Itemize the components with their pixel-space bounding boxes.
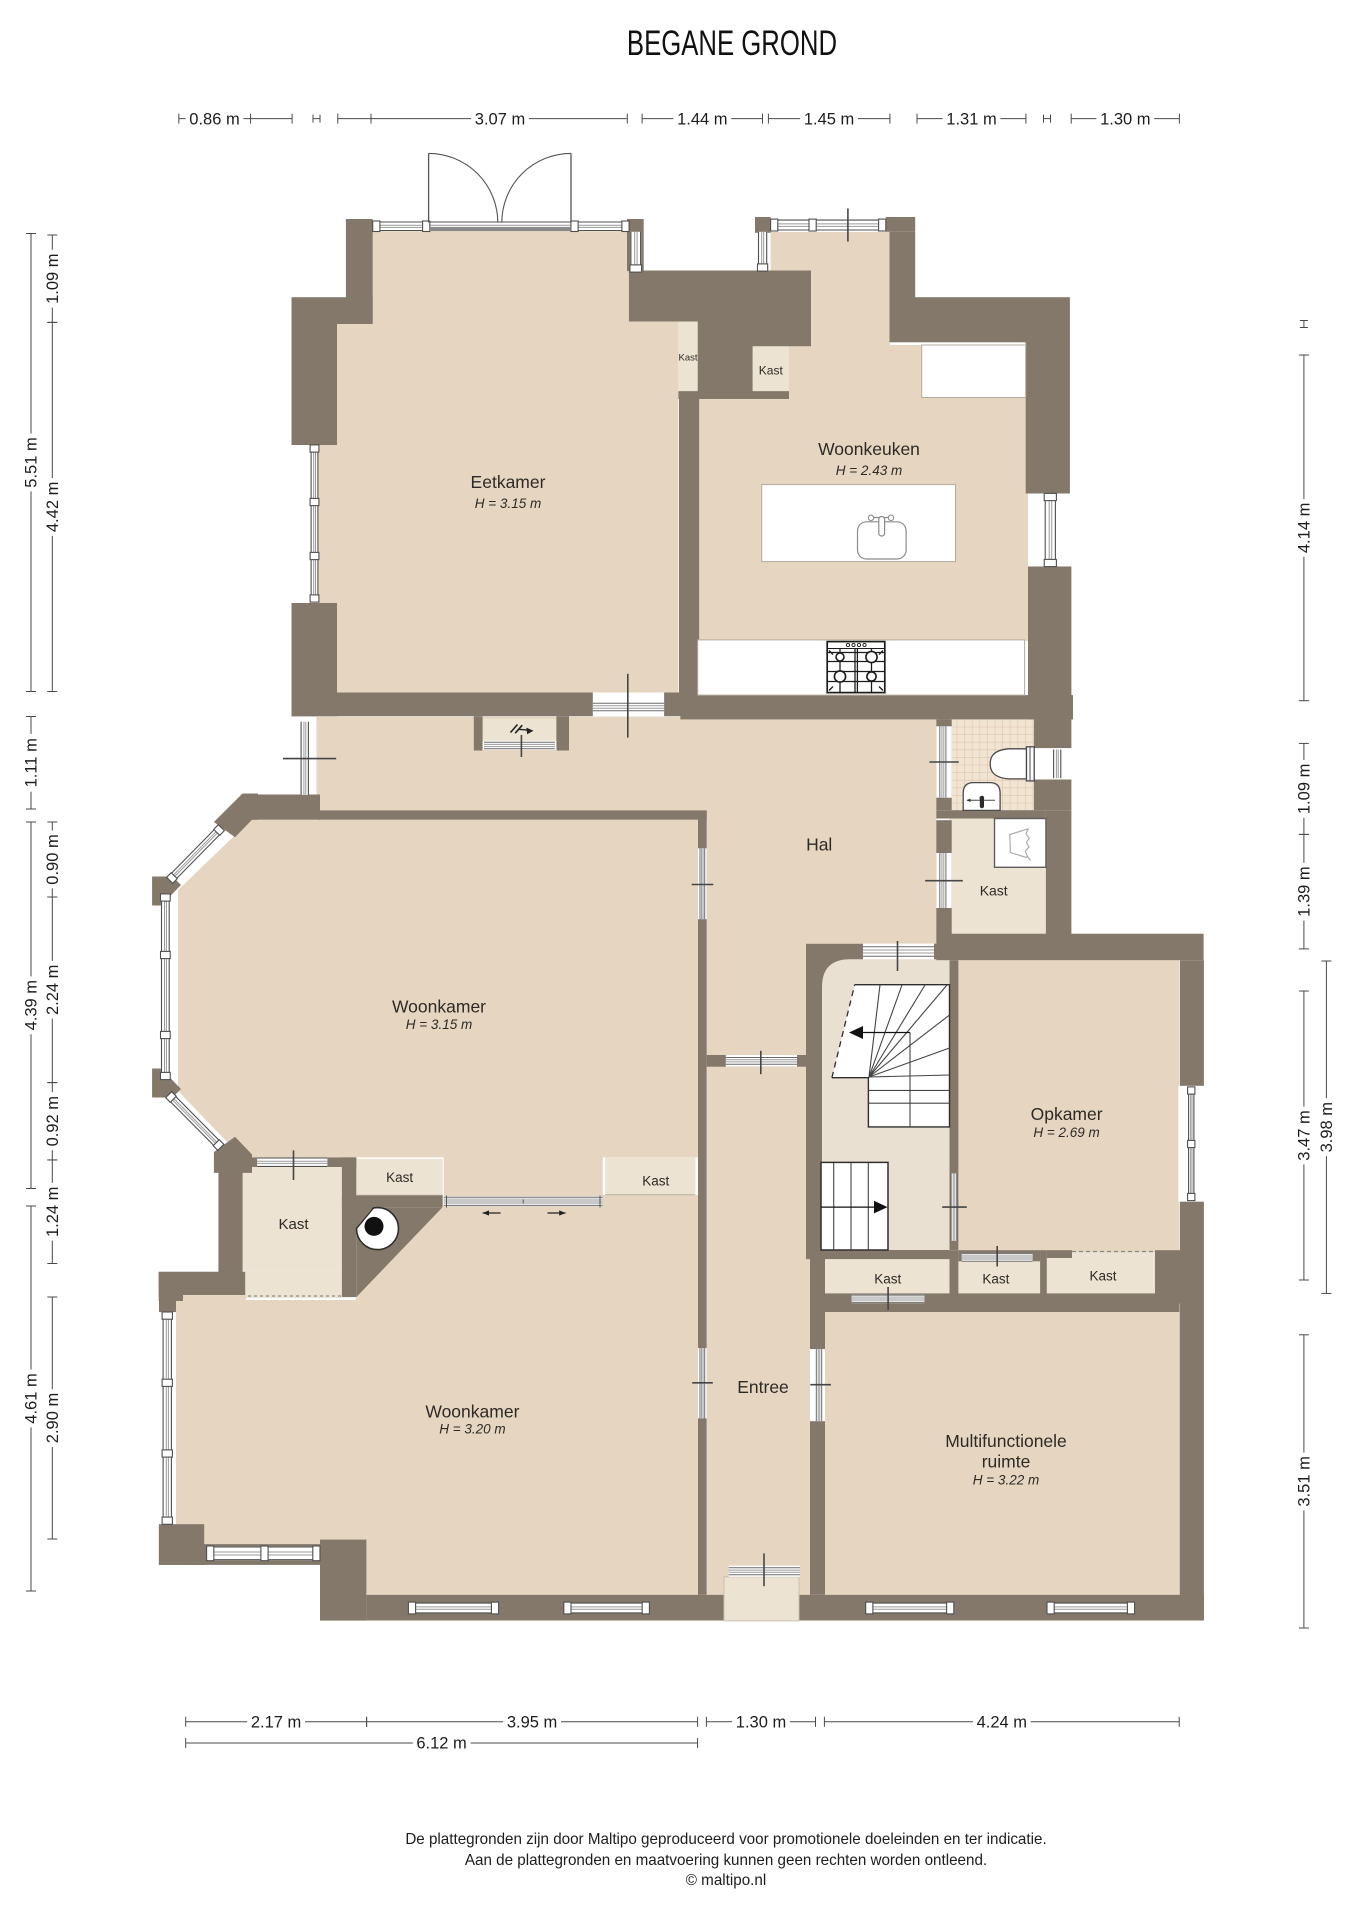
svg-text:3.98 m: 3.98 m — [1318, 1102, 1336, 1152]
svg-text:Kast: Kast — [642, 1174, 669, 1189]
svg-text:1.30 m: 1.30 m — [736, 1714, 786, 1732]
svg-text:2.17 m: 2.17 m — [251, 1714, 301, 1732]
svg-text:6.12 m: 6.12 m — [416, 1735, 466, 1753]
svg-text:0.90 m: 0.90 m — [44, 834, 62, 884]
svg-text:Kast: Kast — [980, 882, 1008, 898]
svg-text:1.44 m: 1.44 m — [677, 110, 727, 128]
svg-text:1.09 m: 1.09 m — [1296, 764, 1314, 814]
svg-text:1.24 m: 1.24 m — [44, 1187, 62, 1237]
svg-text:H = 3.15 m: H = 3.15 m — [406, 1017, 472, 1032]
svg-text:2.90 m: 2.90 m — [44, 1393, 62, 1443]
svg-text:Kast: Kast — [278, 1216, 309, 1233]
svg-text:Kast: Kast — [982, 1272, 1009, 1287]
svg-text:ruimte: ruimte — [982, 1452, 1031, 1472]
svg-text:5.51 m: 5.51 m — [23, 437, 41, 487]
svg-text:Eetkamer: Eetkamer — [471, 472, 546, 492]
svg-text:Kast: Kast — [1089, 1268, 1116, 1283]
svg-text:4.61 m: 4.61 m — [23, 1373, 41, 1423]
svg-text:4.39 m: 4.39 m — [23, 980, 41, 1030]
svg-text:1.45 m: 1.45 m — [804, 110, 854, 128]
svg-text:2.24 m: 2.24 m — [44, 965, 62, 1015]
svg-text:Entree: Entree — [737, 1377, 789, 1397]
svg-text:3.51 m: 3.51 m — [1296, 1456, 1314, 1506]
svg-text:Multifunctionele: Multifunctionele — [945, 1431, 1067, 1451]
svg-text:1.31 m: 1.31 m — [946, 110, 996, 128]
svg-text:Kast: Kast — [759, 363, 784, 377]
svg-text:4.24 m: 4.24 m — [977, 1714, 1027, 1732]
svg-text:0.92 m: 0.92 m — [44, 1096, 62, 1146]
svg-text:4.42 m: 4.42 m — [44, 482, 62, 532]
svg-text:Kast: Kast — [874, 1272, 901, 1287]
svg-text:Kast: Kast — [678, 353, 697, 364]
svg-text:Hal: Hal — [806, 835, 832, 855]
svg-text:H = 2.43 m: H = 2.43 m — [836, 463, 902, 478]
svg-text:1.30 m: 1.30 m — [1100, 110, 1150, 128]
svg-text:3.47 m: 3.47 m — [1296, 1110, 1314, 1160]
svg-text:1.39 m: 1.39 m — [1296, 866, 1314, 916]
svg-text:H = 3.15 m: H = 3.15 m — [475, 496, 541, 511]
svg-text:Woonkamer: Woonkamer — [425, 1402, 519, 1422]
svg-text:Kast: Kast — [386, 1170, 413, 1185]
svg-text:Woonkeuken: Woonkeuken — [818, 439, 920, 459]
svg-text:H = 3.20 m: H = 3.20 m — [439, 1422, 505, 1437]
svg-text:H = 3.22 m: H = 3.22 m — [973, 1473, 1039, 1488]
svg-text:1.11 m: 1.11 m — [23, 738, 41, 787]
svg-text:0.86 m: 0.86 m — [189, 110, 239, 128]
svg-text:Opkamer: Opkamer — [1031, 1104, 1103, 1124]
svg-text:3.95 m: 3.95 m — [507, 1714, 557, 1732]
svg-text:3.07 m: 3.07 m — [475, 110, 525, 128]
svg-text:Woonkamer: Woonkamer — [392, 997, 486, 1017]
svg-text:1.09 m: 1.09 m — [44, 253, 62, 303]
svg-text:H = 2.69 m: H = 2.69 m — [1033, 1125, 1099, 1140]
svg-text:4.14 m: 4.14 m — [1296, 503, 1314, 553]
